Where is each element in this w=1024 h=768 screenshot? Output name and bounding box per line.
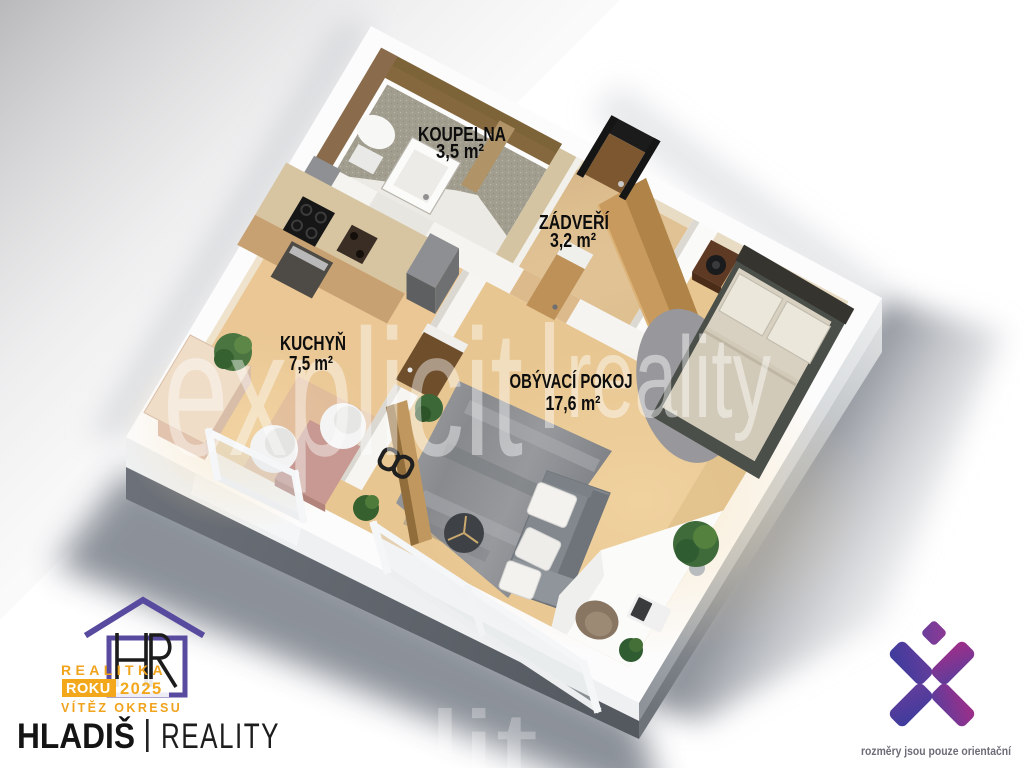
svg-text:17,6 m²: 17,6 m² xyxy=(546,393,601,415)
svg-text:VÍTĚZ OKRESU: VÍTĚZ OKRESU xyxy=(61,700,182,715)
svg-text:2025: 2025 xyxy=(120,680,163,698)
svg-text:7,5 m²: 7,5 m² xyxy=(289,353,333,375)
svg-text:REALITY: REALITY xyxy=(161,717,280,756)
svg-text:rozměry jsou pouze orientační: rozměry jsou pouze orientační xyxy=(861,744,1012,758)
svg-text:3,5 m²: 3,5 m² xyxy=(436,141,484,163)
svg-text:lit: lit xyxy=(428,687,538,768)
svg-text:KUCHYŇ: KUCHYŇ xyxy=(280,331,346,355)
svg-text:OBÝVACÍ POKOJ: OBÝVACÍ POKOJ xyxy=(510,369,633,393)
svg-text:REALITKA: REALITKA xyxy=(61,662,167,678)
svg-text:ROKU: ROKU xyxy=(66,681,111,697)
svg-text:HLADIŠ: HLADIŠ xyxy=(17,716,135,756)
svg-text:explicit: explicit xyxy=(163,293,523,494)
svg-text:3,2 m²: 3,2 m² xyxy=(550,230,596,252)
